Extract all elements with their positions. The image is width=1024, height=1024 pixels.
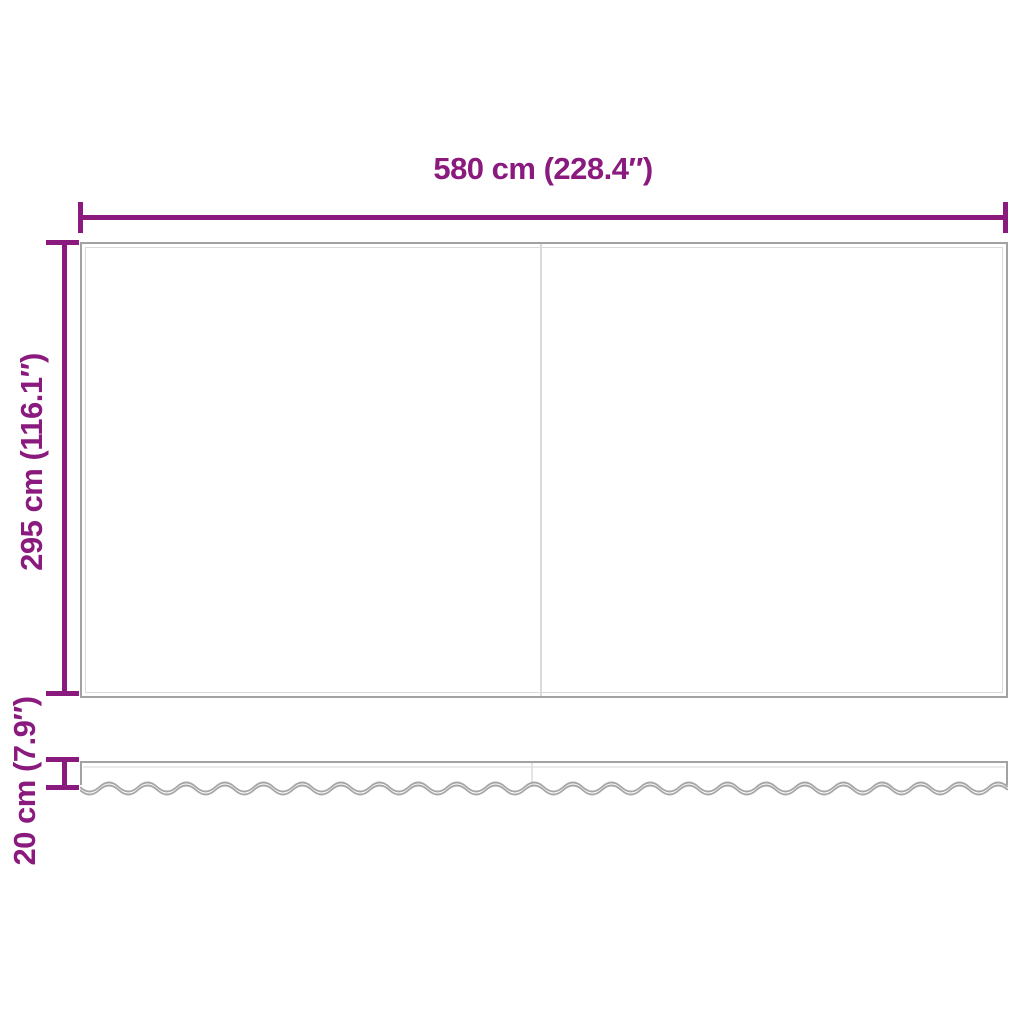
- width-dimension-label: 580 cm (228.4″): [80, 151, 1006, 187]
- fabric-panel-center-seam: [540, 244, 542, 696]
- width-dimension-line: [80, 215, 1006, 220]
- valance-strip: [80, 758, 1008, 802]
- height-dimension-tick-top: [46, 240, 79, 245]
- width-dimension-tick-right: [1003, 202, 1008, 233]
- valance-height-dimension-tick-top: [46, 757, 79, 762]
- height-dimension-label: 295 cm (116.1″): [14, 353, 50, 571]
- height-dimension-tick-bottom: [46, 691, 79, 696]
- height-dimension-line: [62, 242, 67, 695]
- fabric-panel-hem-line: [85, 247, 1003, 693]
- valance-height-dimension-label: 20 cm (7.9″): [7, 696, 43, 865]
- fabric-panel: [80, 242, 1008, 698]
- valance-height-dimension-tick-bottom: [46, 785, 79, 790]
- dimension-diagram: 580 cm (228.4″) 295 cm (116.1″) 20 cm (7…: [0, 0, 1024, 1024]
- width-dimension-tick-left: [78, 202, 83, 233]
